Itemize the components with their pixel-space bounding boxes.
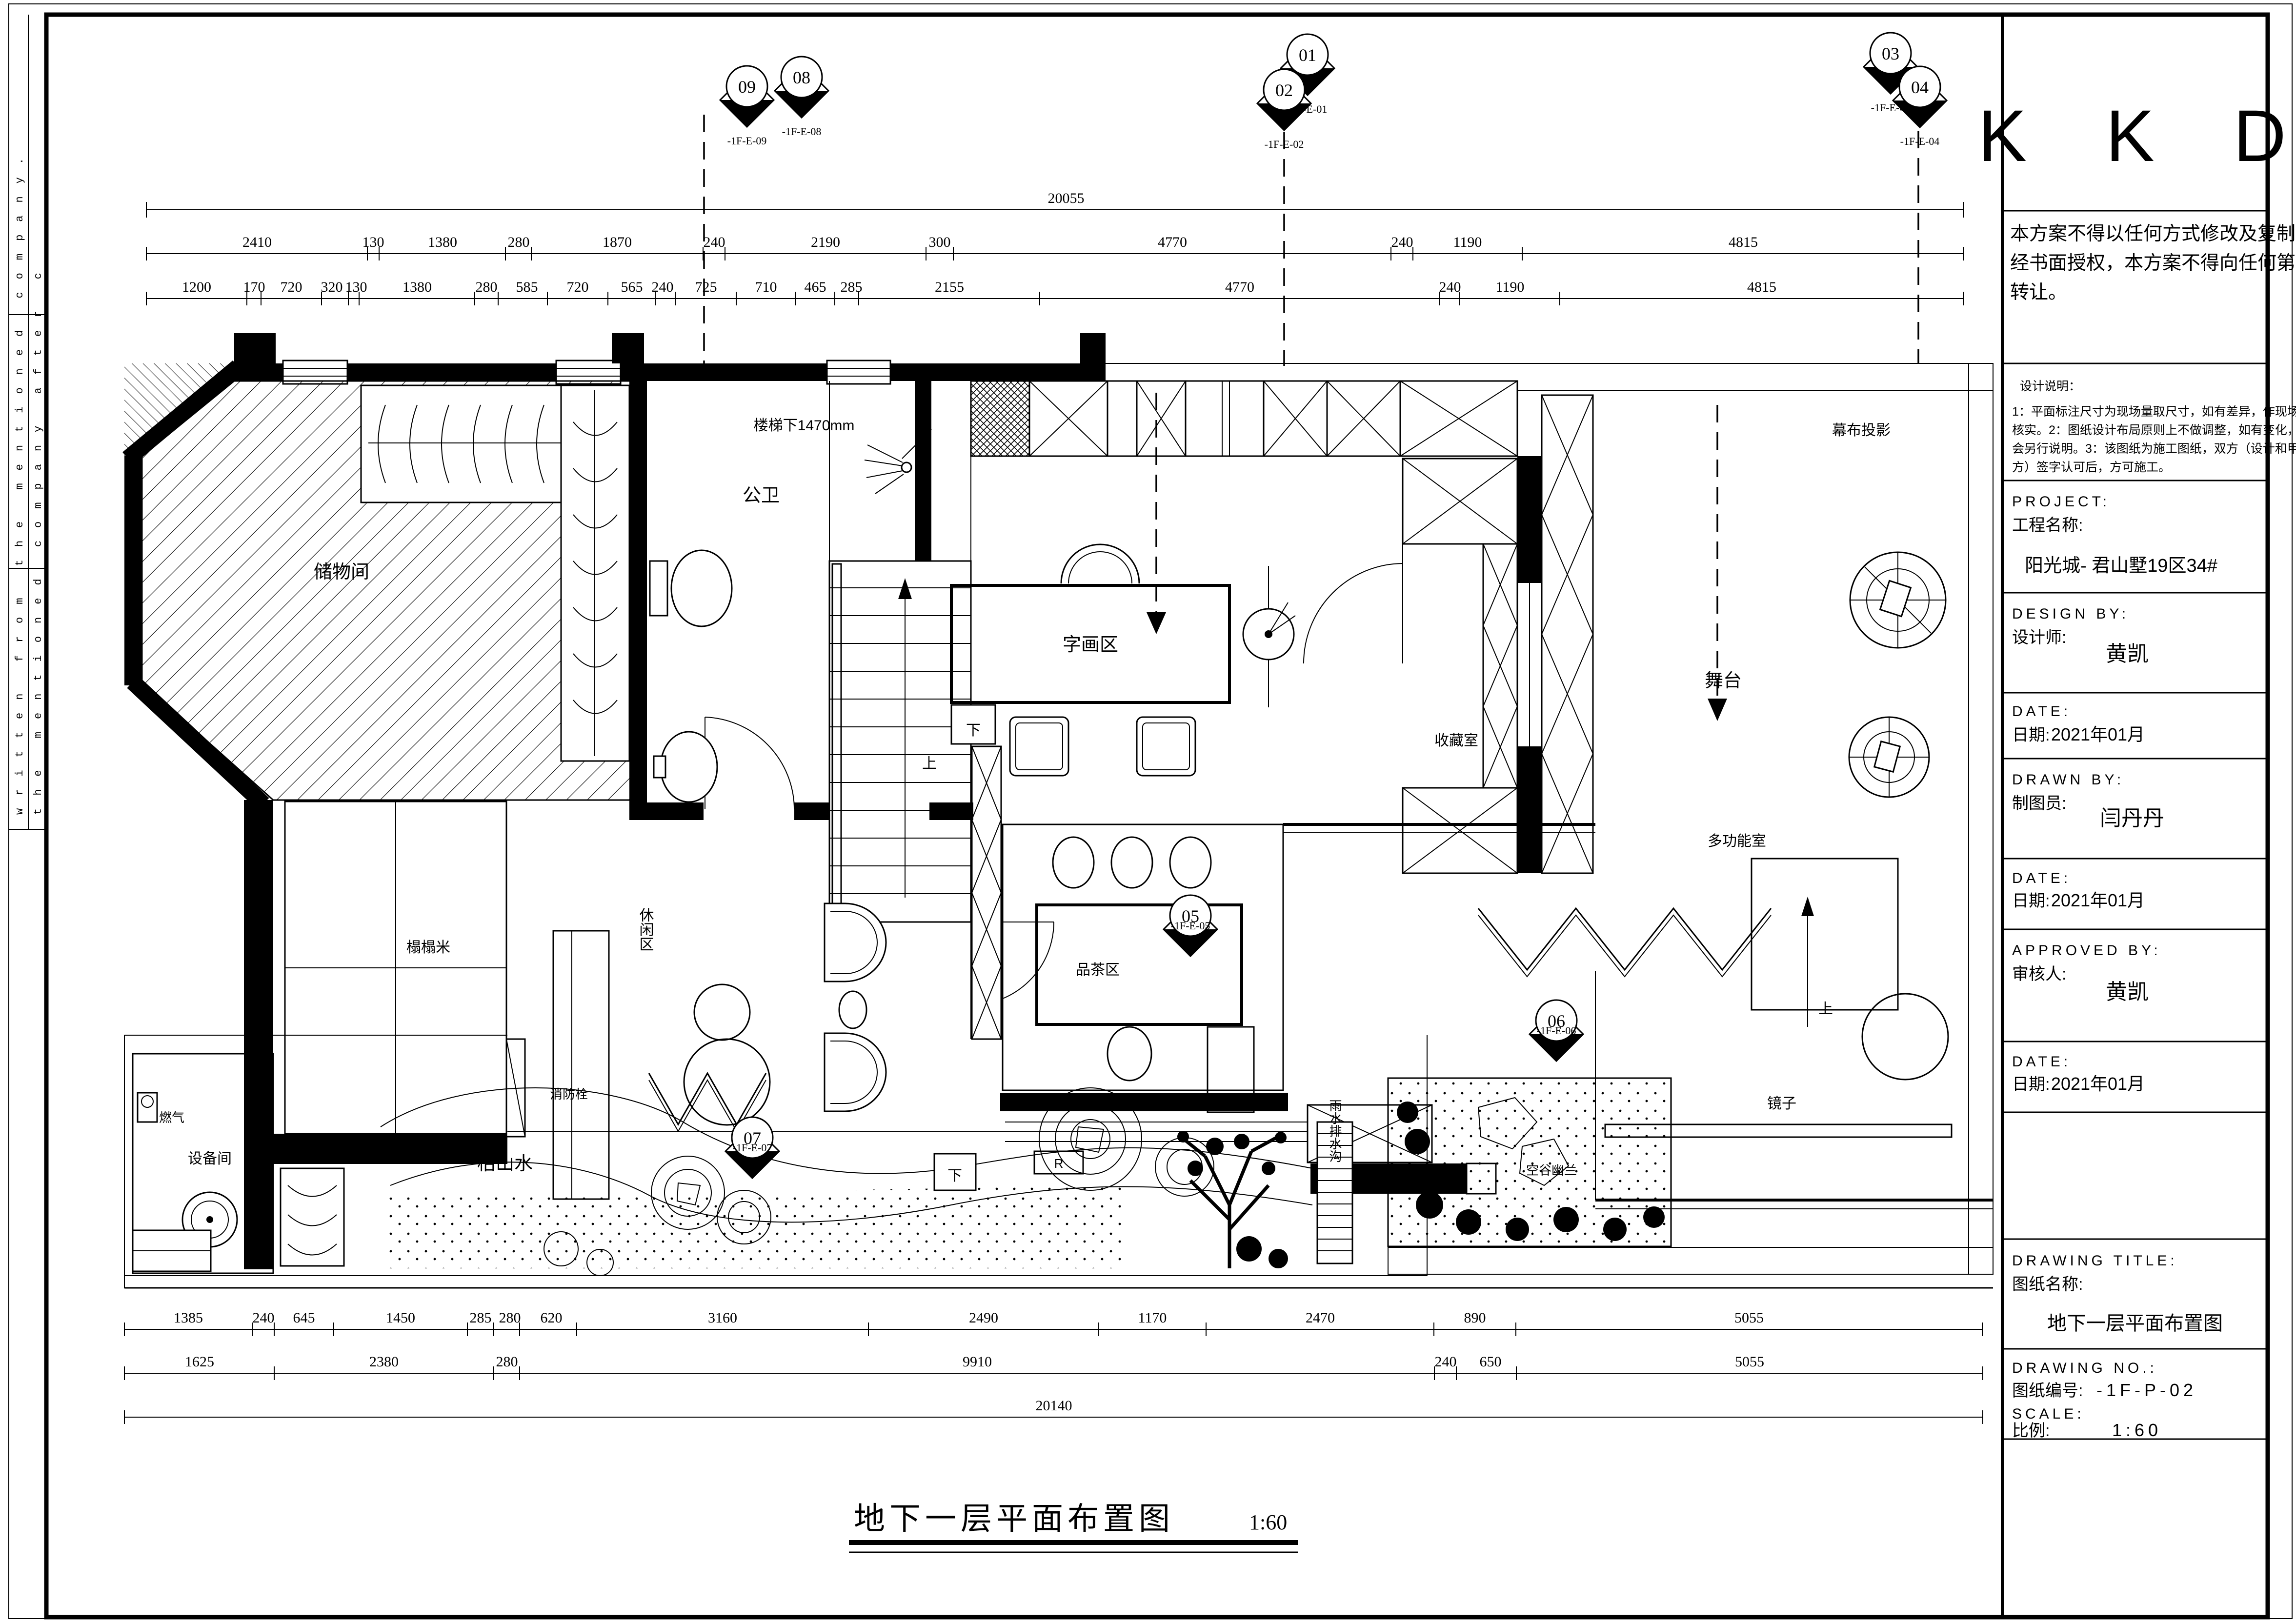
room-label-gas: 燃气 — [159, 1110, 184, 1125]
svg-text:02: 02 — [1275, 80, 1293, 100]
scale-label-en: SCALE: — [2012, 1406, 2085, 1422]
svg-text:01: 01 — [1299, 45, 1316, 65]
toilet-icon — [650, 550, 732, 626]
svg-text:-1F-E-06: -1F-E-06 — [1537, 1024, 1576, 1037]
axis-marker-06: 06 -1F-E-06 — [1530, 1000, 1583, 1061]
axis-marker-04: 04 -1F-E-04 — [1893, 66, 1947, 147]
room-label-curtain: 幕布投影 — [1832, 422, 1891, 439]
svg-text:-1F-E-07: -1F-E-07 — [733, 1142, 772, 1154]
room-label-tea: 品茶区 — [1076, 962, 1120, 978]
dim: 4770 — [1225, 279, 1254, 295]
design-by-label-cn: 设计师: — [2012, 628, 2066, 647]
room-label-wc: 公卫 — [743, 485, 780, 506]
dim: 280 — [496, 1354, 518, 1370]
dim: 240 — [1435, 1354, 1457, 1370]
dim: 1170 — [1138, 1310, 1167, 1326]
svg-text:-1F-E-05: -1F-E-05 — [1171, 920, 1210, 932]
dim: 280 — [476, 279, 498, 295]
drawn-by-value: 闫丹丹 — [2100, 806, 2164, 830]
date-label-en: DATE: — [2012, 870, 2071, 886]
dim: 1385 — [174, 1310, 203, 1326]
disclaimer-line: 经书面授权，本方案不得向任何第三方 — [2010, 253, 2296, 274]
dim: 285 — [470, 1310, 492, 1326]
dim: 320 — [321, 279, 343, 295]
dim: 1380 — [428, 234, 457, 250]
dim: 1625 — [185, 1354, 214, 1370]
svg-text:04: 04 — [1911, 78, 1929, 97]
date-label-en: DATE: — [2012, 1054, 2071, 1070]
dimensions-top: 20055 2410 130 1380 280 1870 240 2190 30… — [146, 190, 1964, 305]
down-box-corridor: 下 — [951, 705, 995, 744]
stairs: 楼梯下1470mm 上 — [754, 381, 1054, 1039]
drawing-no-value: -1F-P-02 — [2096, 1380, 2197, 1400]
disclaimer-line: 转让。 — [2010, 282, 2067, 303]
dim: 465 — [805, 279, 826, 295]
floor-plan-canvas: written from the mentioned company. the … — [0, 0, 2296, 1623]
stair-note: 楼梯下1470mm — [754, 418, 855, 434]
dim: 240 — [253, 1310, 275, 1326]
dim-bottom-total: 20140 — [1036, 1398, 1072, 1414]
date-value-3: 2021年01月 — [2051, 1074, 2145, 1094]
dim: 2490 — [969, 1310, 998, 1326]
dim: 9910 — [963, 1354, 992, 1370]
dim: 620 — [541, 1310, 563, 1326]
gas-meter: 燃气 — [138, 1093, 184, 1125]
dim: 725 — [695, 279, 717, 295]
svg-text:-1F-E-09: -1F-E-09 — [727, 135, 767, 147]
room-label-collection: 收藏室 — [1434, 733, 1478, 749]
garden-right: 空谷幽兰 — [1388, 1078, 1671, 1246]
approved-label-en: APPROVED BY: — [2012, 942, 2161, 959]
dim: 1190 — [1496, 279, 1525, 295]
dim: 240 — [1439, 279, 1461, 295]
dim: 585 — [516, 279, 538, 295]
up-label-stairs: 上 — [922, 756, 937, 772]
dim: 650 — [1480, 1354, 1502, 1370]
dim: 4770 — [1158, 234, 1187, 250]
dim: 2155 — [935, 279, 964, 295]
room-label-equipment: 设备间 — [188, 1151, 232, 1167]
plan-title: 地下一层平面布置图 — [854, 1501, 1174, 1536]
dim: 890 — [1464, 1310, 1486, 1326]
drawn-by-label-en: DRAWN BY: — [2012, 772, 2124, 788]
dim: 3160 — [708, 1310, 737, 1326]
date-label-cn: 日期: — [2012, 892, 2050, 910]
project-label-cn: 工程名称: — [2012, 516, 2083, 535]
room-collection: 收藏室 — [1304, 456, 1542, 873]
date-label-cn: 日期: — [2012, 1075, 2050, 1094]
drain-channel: 雨水排水沟 — [1317, 1099, 1352, 1263]
side-note-1: written from the mentioned company. — [14, 145, 26, 815]
armchair-icon — [825, 1033, 886, 1111]
date-value-1: 2021年01月 — [2051, 724, 2145, 744]
project-value: 阳光城- 君山墅19区34# — [2025, 556, 2217, 576]
top-cabinets — [971, 381, 1517, 456]
dim: 5055 — [1735, 1354, 1764, 1370]
drawing-bottom-title: 地下一层平面布置图 1:60 — [849, 1501, 1298, 1552]
dim: 1450 — [386, 1310, 415, 1326]
design-notes-title: 设计说明： — [2020, 380, 2081, 393]
svg-text:03: 03 — [1882, 44, 1899, 63]
stage-screen-strip — [1542, 395, 1593, 873]
fan-symbol — [1243, 566, 1295, 707]
room-leisure: 休闲区 — [553, 903, 886, 1199]
axis-marker-02: 02 -1F-E-02 — [1257, 69, 1311, 150]
swivel-chair-icon — [1849, 717, 1929, 797]
dim-top-total: 20055 — [1048, 190, 1085, 206]
dim: 130 — [363, 234, 384, 250]
dim: 1380 — [403, 279, 432, 295]
date-value-2: 2021年01月 — [2051, 890, 2145, 910]
svg-text:R: R — [1054, 1156, 1064, 1171]
drawing-no-label-en: DRAWING NO.: — [2012, 1360, 2157, 1376]
dim: 2410 — [242, 234, 272, 250]
room-label-tatami: 榻榻米 — [406, 940, 450, 956]
room-label-mirror: 镜子 — [1767, 1096, 1796, 1112]
scale-value: 1:60 — [2112, 1420, 2162, 1440]
dim: 240 — [652, 279, 674, 295]
dim: 285 — [841, 279, 863, 295]
svg-text:下: 下 — [947, 1168, 962, 1184]
room-label-storage: 储物间 — [314, 562, 369, 582]
scale-label-cn: 比例: — [2012, 1422, 2050, 1440]
dim: 1190 — [1453, 234, 1482, 250]
dim: 280 — [499, 1310, 521, 1326]
side-note-2: the mentioned company after c — [32, 260, 44, 815]
design-notes-line: 1：平面标注尺寸为现场量取尺寸，如有差异，作现场 — [2012, 405, 2296, 419]
rock-spiral — [1155, 1138, 1214, 1196]
dim: 4815 — [1747, 279, 1776, 295]
dim: 5055 — [1734, 1310, 1764, 1326]
axis-marker-08: 08 -1F-E-08 — [775, 57, 828, 138]
date-label-cn: 日期: — [2012, 726, 2050, 744]
svg-text:-1F-E-08: -1F-E-08 — [782, 125, 822, 138]
dim: 130 — [345, 279, 367, 295]
disclaimer-line: 本方案不得以任何方式修改及复制。未 — [2010, 223, 2296, 244]
approved-label-cn: 审核人: — [2012, 965, 2066, 983]
dim: 645 — [293, 1310, 315, 1326]
dim: 300 — [929, 234, 951, 250]
date-label-en: DATE: — [2012, 703, 2071, 720]
dim: 710 — [755, 279, 777, 295]
drawing-no-label-cn: 图纸编号: — [2012, 1382, 2083, 1400]
design-by-label-en: DESIGN BY: — [2012, 606, 2129, 622]
drawing-sheet: written from the mentioned company. the … — [0, 0, 2296, 1623]
sheet-frame — [9, 4, 2292, 1619]
dim: 1870 — [603, 234, 632, 250]
sheet-margin-notes: written from the mentioned company. the … — [14, 145, 44, 815]
drawn-by-label-cn: 制图员: — [2012, 794, 2066, 813]
room-storage: 储物间 — [142, 381, 634, 800]
drain-label: 雨水排水沟 — [1328, 1099, 1342, 1162]
garden-name: 空谷幽兰 — [1526, 1163, 1577, 1178]
design-notes-line: 方）签字认可后，方可施工。 — [2012, 461, 2171, 474]
approved-value: 黄凯 — [2106, 980, 2149, 1004]
dim: 240 — [704, 234, 725, 250]
dim: 720 — [567, 279, 589, 295]
design-by-value: 黄凯 — [2106, 642, 2149, 666]
axis-marker-09: 09 -1F-E-09 — [720, 66, 774, 147]
svg-text:-1F-E-04: -1F-E-04 — [1900, 135, 1940, 147]
design-notes-line: 核实。2：图纸设计布局原则上不做调整，如有变化， — [2012, 423, 2296, 437]
dim: 720 — [281, 279, 302, 295]
room-label-calligraphy: 字画区 — [1063, 635, 1118, 655]
dimensions-bottom: 1385 240 645 1450 285 280 620 3160 2490 … — [124, 1310, 1983, 1424]
plan-title-scale: 1:60 — [1249, 1510, 1287, 1534]
svg-text:09: 09 — [738, 77, 756, 97]
sink-icon — [654, 732, 717, 802]
dim: 280 — [508, 234, 530, 250]
project-label-en: PROJECT: — [2012, 494, 2110, 510]
room-label-stage: 舞台 — [1705, 671, 1742, 691]
dim: 170 — [243, 279, 265, 295]
room-tea: 品茶区 R — [1000, 824, 1315, 1174]
room-label-multifunction: 多功能室 — [1708, 833, 1766, 849]
corridor-cabinet-strip — [972, 746, 1001, 1039]
drawing-title-value: 地下一层平面布置图 — [2047, 1313, 2223, 1334]
dim: 2470 — [1306, 1310, 1335, 1326]
dim: 1200 — [182, 279, 211, 295]
room-label-leisure: 休闲区 — [637, 907, 654, 951]
drawing-title-label-en: DRAWING TITLE: — [2012, 1253, 2178, 1269]
svg-text:下: 下 — [966, 722, 981, 739]
room-label-dry-landscape: 枯山水 — [477, 1154, 533, 1174]
svg-text:-1F-E-02: -1F-E-02 — [1265, 138, 1304, 150]
company-logo: K K D — [1978, 95, 2296, 177]
dim: 240 — [1391, 234, 1413, 250]
dim: 2190 — [811, 234, 840, 250]
dim: 2380 — [369, 1354, 399, 1370]
design-notes-line: 会另行说明。3：该图纸为施工图纸，双方（设计和甲 — [2012, 442, 2296, 456]
dim: 565 — [621, 279, 643, 295]
dim: 4815 — [1729, 234, 1758, 250]
drawing-title-label-cn: 图纸名称: — [2012, 1275, 2083, 1294]
svg-text:08: 08 — [793, 68, 810, 87]
title-block: K K D 本方案不得以任何方式修改及复制。未 经书面授权，本方案不得向任何第三… — [1978, 95, 2296, 1440]
down-box-garden: 下 — [934, 1154, 976, 1190]
swivel-chair-icon — [1850, 552, 1946, 648]
